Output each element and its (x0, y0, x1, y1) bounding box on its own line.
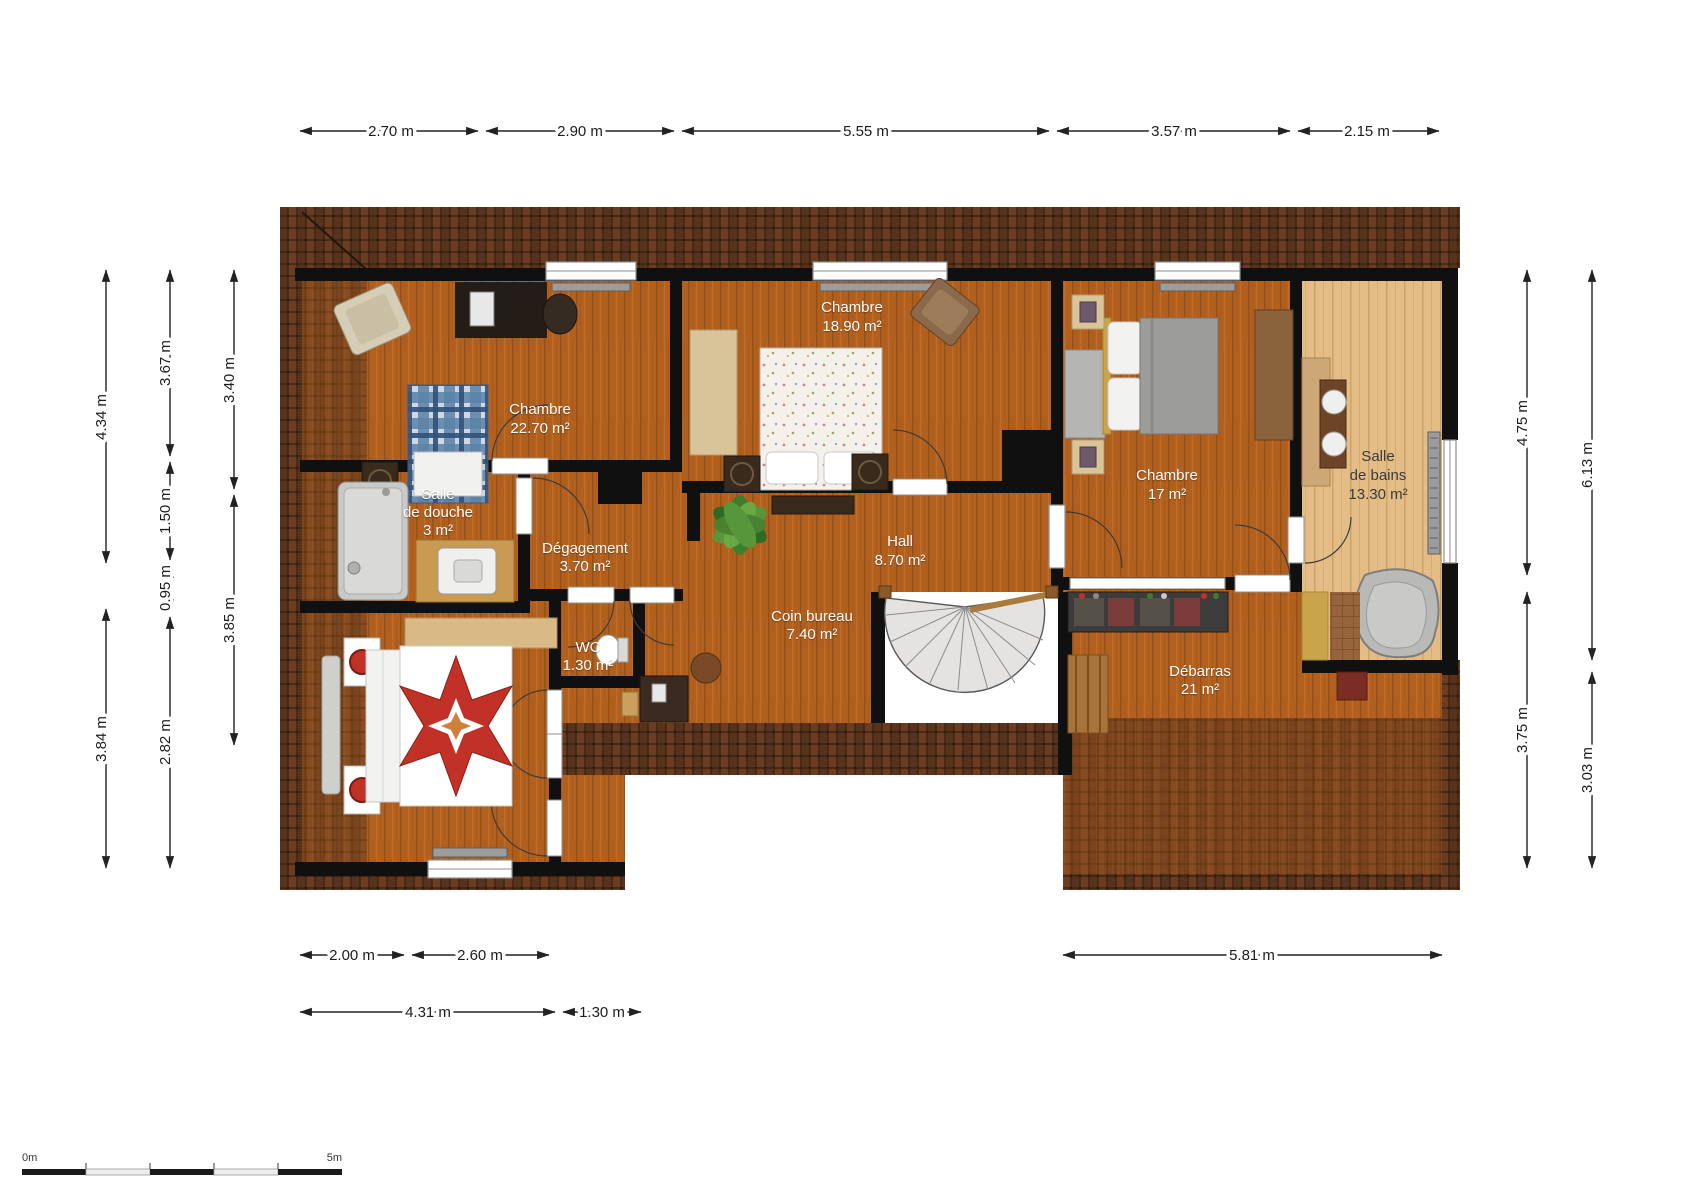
bathtub-icon (1355, 569, 1438, 657)
room-label-douche-2: de douche (403, 504, 473, 521)
dim-label: 2.70 m (368, 123, 414, 140)
room-area-hall: 8.70 m² (875, 552, 926, 569)
window-bottom-bedroom (428, 848, 512, 878)
stair-post (1046, 586, 1058, 598)
dim-left-outer: 4.34 m 3.84 m (93, 270, 110, 868)
room-label-douche-1: Salle (421, 486, 454, 503)
scale-end-label: 5m (327, 1152, 342, 1164)
dim-top: 2.70 m 2.90 m 5.55 m 3.57 m 2.15 m (300, 123, 1439, 140)
dim-label: 2.90 m (557, 123, 603, 140)
scale-bar: 0m 5m (22, 1152, 342, 1175)
wardrobe-clothes-icon (1068, 592, 1228, 632)
room-area-debarras: 21 m² (1181, 681, 1219, 698)
scale-segment (278, 1169, 342, 1175)
scale-segment (22, 1169, 86, 1175)
dim-label: 2.82 m (157, 719, 174, 765)
dim-bottom-row1: 2.00 m 2.60 m 5.81 m (300, 947, 1442, 964)
dim-right-inner: 4.75 m 3.75 m (1514, 270, 1531, 868)
scale-segment (150, 1169, 214, 1175)
room-area-chambre-22: 22.70 m² (510, 420, 569, 437)
tile-patch (1330, 592, 1360, 660)
room-label-chambre-22: Chambre (509, 401, 571, 418)
roof-top-right-corner (1442, 207, 1460, 268)
wall-chambre1-chambre2 (670, 281, 682, 472)
shower-icon (338, 482, 408, 600)
dim-label: 3.84 m (93, 716, 110, 762)
sink-icon (1322, 390, 1346, 414)
wall-right-lower (1442, 563, 1458, 675)
office-chair-icon (543, 294, 577, 334)
window-top-chambre1 (546, 262, 636, 291)
dim-label: 3.85 m (221, 597, 238, 643)
radiator-icon (1428, 432, 1440, 554)
dim-label: 3.40 m (221, 357, 238, 403)
window-debarras-top (1070, 578, 1225, 589)
room-label-bathroom-2: de bains (1350, 467, 1407, 484)
nightstand-icon (852, 454, 888, 490)
roof-left-edge (280, 207, 302, 890)
dim-left-inner: 3.40 m 3.85 m (221, 270, 238, 745)
dim-label: 0.95 m (157, 565, 174, 611)
room-area-bathroom: 13.30 m² (1348, 486, 1407, 503)
room-label-bathroom-1: Salle (1361, 448, 1394, 465)
rug-icon (1337, 672, 1367, 700)
roof-right-edge (1442, 660, 1460, 874)
roof-debarras-slope (1063, 718, 1442, 874)
wall-chimney-block-2 (1002, 430, 1052, 493)
dim-label: 4.34 m (93, 394, 110, 440)
wall-right-upper (1442, 268, 1458, 440)
wall-chimney-block-1 (598, 470, 642, 504)
wall-douche-bottom (300, 601, 530, 613)
window-top-chambre3 (1155, 262, 1240, 291)
room-label-coin-bureau: Coin bureau (771, 608, 853, 625)
room-label-hall: Hall (887, 533, 913, 550)
roof-top-band (280, 207, 1460, 268)
dim-label: 3.57 m (1151, 123, 1197, 140)
room-label-debarras: Débarras (1169, 663, 1231, 680)
dim-label: 5.81 m (1229, 947, 1275, 964)
dim-label: 6.13 m (1579, 442, 1596, 488)
dim-label: 2.60 m (457, 947, 503, 964)
room-area-coin-bureau: 7.40 m² (787, 626, 838, 643)
floor-plan-svg: Chambre 22.70 m² Chambre 18.90 m² Chambr… (0, 0, 1696, 1200)
table-icon (690, 330, 737, 455)
dresser-icon (1255, 310, 1293, 440)
dim-label: 2.15 m (1344, 123, 1390, 140)
scale-segment (86, 1169, 150, 1175)
wall-stair-left (871, 592, 885, 723)
dim-label: 3.75 m (1514, 707, 1531, 753)
radiator-icon (433, 848, 507, 857)
room-area-degagement: 3.70 m² (560, 558, 611, 575)
wall-bath-bottom (1302, 660, 1442, 673)
room-label-chambre-18: Chambre (821, 299, 883, 316)
window-top-chambre2 (813, 262, 947, 291)
roof-bottom-right-band (1063, 874, 1460, 890)
sink-icon (1322, 432, 1346, 456)
dim-label: 4.75 m (1514, 400, 1531, 446)
dim-left-middle: 3.67 m 1.50 m 0.95 m 2.82 m (157, 270, 174, 868)
room-label-degagement: Dégagement (542, 540, 629, 557)
bench-icon (322, 656, 340, 794)
radiator-icon (1160, 283, 1235, 291)
bath-mat-icon (1302, 592, 1328, 660)
room-area-douche: 3 m² (423, 522, 453, 539)
stair-post (879, 586, 891, 598)
room-area-chambre-18: 18.90 m² (822, 318, 881, 335)
table-icon (405, 618, 557, 648)
office-chair-icon (691, 653, 721, 683)
room-label-chambre-17: Chambre (1136, 467, 1198, 484)
dim-label: 4.31 m (405, 1004, 451, 1021)
ladder-shelf-icon (1068, 655, 1108, 733)
scale-segment (214, 1169, 278, 1175)
radiator-icon (820, 283, 940, 291)
scale-start-label: 0m (22, 1152, 37, 1164)
radiator-icon (552, 283, 630, 291)
wall-wc-bottom (555, 676, 645, 688)
dim-label: 2.00 m (329, 947, 375, 964)
window-hall-chambre3 (1049, 505, 1065, 568)
room-area-chambre-17: 17 m² (1148, 486, 1186, 503)
dim-label: 3.67 m (157, 340, 174, 386)
roof-middle-band (561, 723, 1063, 775)
dim-label: 1.30 m (579, 1004, 625, 1021)
dim-right-outer: 6.13 m 3.03 m (1579, 270, 1596, 868)
floor-plan-canvas: Chambre 22.70 m² Chambre 18.90 m² Chambr… (0, 0, 1696, 1200)
bench-icon (772, 496, 854, 514)
dim-label: 5.55 m (843, 123, 889, 140)
wall-wc-right (633, 592, 645, 688)
wardrobe-icon (1065, 350, 1105, 438)
sink-cabinet-icon (416, 540, 514, 602)
dim-label: 1.50 m (157, 488, 174, 534)
room-area-wc: 1.30 m² (563, 657, 614, 674)
dim-bottom-row2: 4.31 m 1.30 m (300, 1004, 641, 1021)
room-label-wc: WC (576, 639, 601, 656)
dim-label: 3.03 m (1579, 747, 1596, 793)
nightstand-icon (724, 456, 760, 492)
